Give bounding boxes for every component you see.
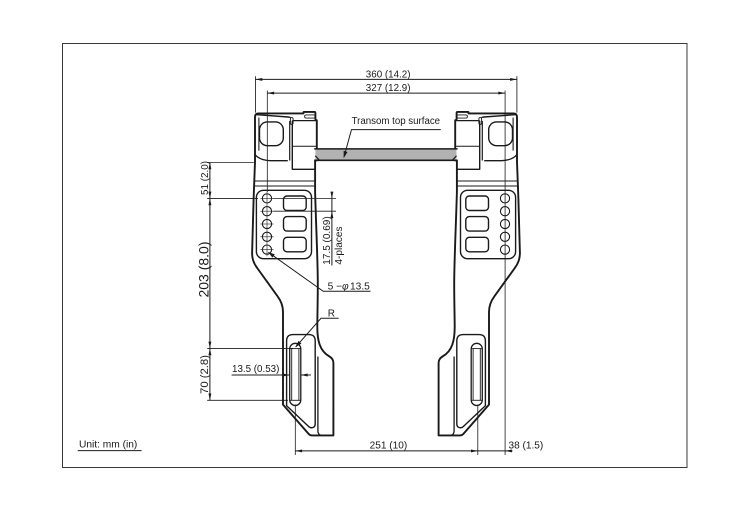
svg-text:203 (8.0): 203 (8.0) — [195, 241, 211, 297]
svg-text:Unit: mm (in): Unit: mm (in) — [79, 440, 137, 451]
svg-text:13.5 (0.53): 13.5 (0.53) — [232, 364, 279, 375]
svg-text:70 (2.8): 70 (2.8) — [199, 355, 211, 394]
svg-text:R: R — [328, 309, 335, 320]
svg-text:38 (1.5): 38 (1.5) — [509, 440, 544, 451]
svg-text:360 (14.2): 360 (14.2) — [366, 70, 411, 81]
svg-text:251 (10): 251 (10) — [370, 440, 408, 451]
svg-text:51 (2.0): 51 (2.0) — [200, 161, 211, 195]
svg-text:Transom top surface: Transom top surface — [352, 116, 440, 127]
svg-text:327 (12.9): 327 (12.9) — [366, 83, 411, 94]
svg-text:17.5 (0.69): 17.5 (0.69) — [322, 216, 333, 264]
svg-text:4-places: 4-places — [334, 226, 345, 264]
